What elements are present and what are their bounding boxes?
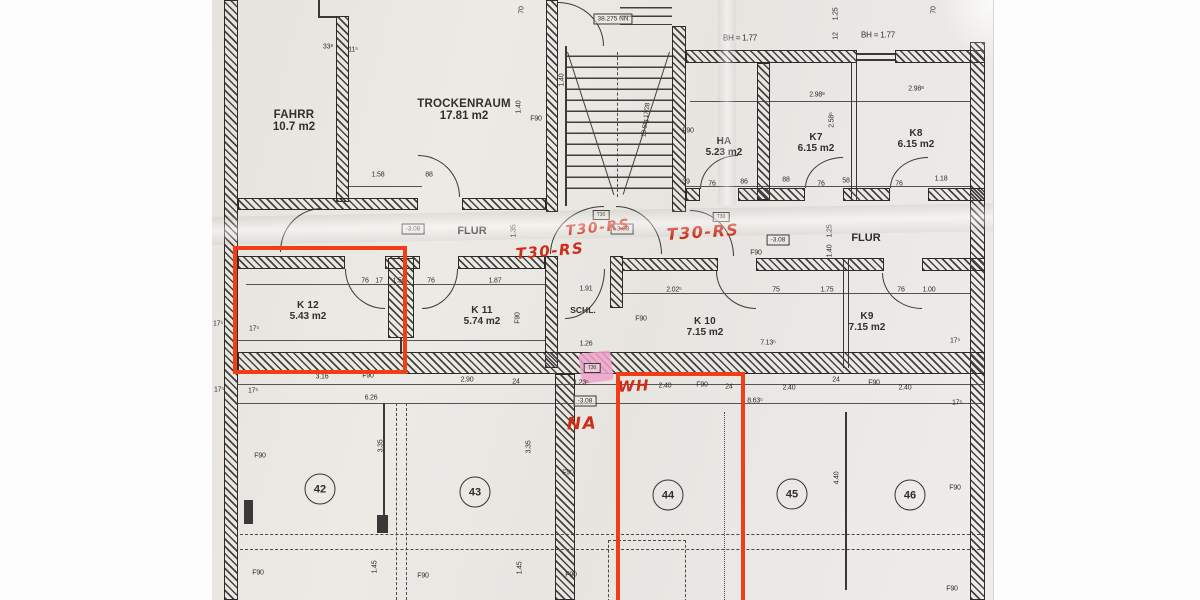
corridor-label: FLUR [851, 232, 880, 244]
room-name: FAHRR [273, 109, 315, 121]
dim-label: 2.98⁸ [908, 86, 924, 93]
room-label: K76.15 m2 [798, 132, 835, 154]
dim-label: 1.00 [923, 287, 936, 294]
dim-label: 17⁵ [952, 400, 962, 407]
dim-label: 1.25 [827, 225, 834, 238]
room-name: HA [706, 136, 743, 147]
dim-label: 1.40 [559, 74, 566, 87]
zone-number-circle: 46 [895, 480, 926, 511]
dim-label: 88 [425, 172, 432, 179]
room-label: K 107.15 m2 [687, 316, 724, 338]
dim-label: F90 [682, 128, 693, 135]
dim-label: 17⁵ [950, 338, 960, 345]
room-name: K7 [798, 132, 835, 143]
red-marker-rect-zone44 [616, 372, 745, 600]
room-area: 10.7 m2 [273, 121, 315, 133]
floorplan-scan: 33⁸11⁵70701.2512BH = 1.77BH = 1.771.402.… [0, 0, 1200, 600]
dim-label: 75 [772, 287, 779, 294]
dim-label: 1.23⁵ [573, 380, 589, 387]
dim-label: 3.35 [526, 441, 533, 454]
dim-label: F90 [868, 380, 879, 387]
dim-label: 1.40 [827, 245, 834, 258]
dim-label: 11⁵ [348, 47, 358, 54]
dim-label: 17⁵ [214, 387, 224, 394]
dim-label: 2.98⁸ [809, 92, 825, 99]
dim-label: 1.87 [489, 278, 502, 285]
level-box: 38.275 NN [593, 14, 632, 25]
dim-label: F90 [254, 453, 265, 460]
level-box: T30 [584, 363, 601, 373]
red-pen-annotation: T30-RS [666, 220, 740, 244]
room-area: 6.15 m2 [798, 143, 835, 154]
level-box: -3.08 [574, 396, 597, 407]
dim-label: F90 [565, 572, 576, 579]
dim-label: 8.63⁵ [747, 398, 763, 405]
red-pen-annotation: T30-RS [515, 239, 585, 263]
dim-label: 17⁵ [248, 388, 258, 395]
red-pen-annotation: NA [566, 413, 597, 434]
dim-label: 1.25 [833, 8, 840, 21]
dim-label: 76 [708, 181, 715, 188]
room-name: K8 [898, 128, 935, 139]
corridor-label: SCHL. [570, 305, 596, 315]
dim-label: 1.35 [511, 225, 518, 238]
dim-label: 2.58⁵ [829, 112, 836, 128]
room-label: TROCKENRAUM17.81 m2 [417, 98, 511, 122]
zone-number-circle: 45 [777, 479, 808, 510]
dim-label: 88 [782, 177, 789, 184]
dim-label: F90 [750, 250, 761, 257]
dim-label: 3.16 [316, 374, 329, 381]
dim-label: 1.18 [935, 176, 948, 183]
room-area: 5.74 m2 [464, 316, 501, 327]
dim-label: 86 [740, 179, 747, 186]
room-area: 7.15 m2 [849, 322, 886, 333]
zone-number-circle: 42 [305, 474, 336, 505]
dim-label: 1.40 [516, 101, 523, 114]
room-label: K97.15 m2 [849, 311, 886, 333]
dim-label: 76 [895, 181, 902, 188]
label-layer: 33⁸11⁵70701.2512BH = 1.77BH = 1.771.402.… [0, 0, 1200, 600]
dim-label: 1.91 [580, 286, 593, 293]
dim-label: 6.26 [365, 395, 378, 402]
dim-label: 17⁵ [213, 321, 223, 328]
room-name: K 10 [687, 316, 724, 327]
dim-label: 39 [682, 179, 689, 186]
dim-label: 2.02⁵ [666, 287, 682, 294]
dim-label: F90 [562, 470, 573, 477]
red-pen-annotation: T30-RS [565, 217, 631, 240]
dim-label: 3.35 [378, 440, 385, 453]
zone-number-circle: 43 [460, 477, 491, 508]
room-label: K86.15 m2 [898, 128, 935, 150]
room-name: K9 [849, 311, 886, 322]
room-label: FAHRR10.7 m2 [273, 109, 315, 133]
dim-label: BH = 1.77 [723, 34, 757, 43]
dim-label: 70 [519, 6, 526, 13]
corridor-label: FLUR [457, 225, 486, 237]
red-marker-rect-k12 [233, 246, 407, 374]
room-label: K 115.74 m2 [464, 305, 501, 327]
dim-label: 33⁸ [323, 44, 333, 51]
dim-label: F90 [946, 586, 957, 593]
dim-label: F90 [515, 312, 522, 323]
dim-label: 2.40 [783, 385, 796, 392]
dim-label: 24 [512, 379, 519, 386]
room-area: 5.23 m2 [706, 147, 743, 158]
level-box: -3.08 [767, 235, 790, 246]
dim-label: 1.45 [372, 561, 379, 574]
dim-label: 1.45 [517, 562, 524, 575]
room-name: K 11 [464, 305, 501, 316]
dim-label: BH = 1.77 [861, 31, 895, 40]
dim-label: F90 [417, 573, 428, 580]
dim-label: F90 [530, 116, 541, 123]
level-box: -3.08 [402, 224, 425, 235]
room-area: 6.15 m2 [898, 139, 935, 150]
dim-label: 7.13⁵ [760, 340, 776, 347]
dim-label: 1.75 [821, 287, 834, 294]
room-name: TROCKENRAUM [417, 98, 511, 110]
dim-label: 1.58 [372, 172, 385, 179]
dim-label: 12 [833, 32, 840, 39]
room-label: HA5.23 m2 [706, 136, 743, 158]
dim-label: 76 [817, 181, 824, 188]
dim-label: 2.40 [899, 385, 912, 392]
dim-label: 18 Stg 17/28 [640, 102, 651, 137]
room-area: 17.81 m2 [417, 110, 511, 122]
dim-label: 1.26 [580, 341, 593, 348]
dim-label: 58 [842, 178, 849, 185]
dim-label: 24 [832, 377, 839, 384]
dim-label: 70 [931, 6, 938, 13]
dim-label: F90 [949, 485, 960, 492]
dim-label: F90 [252, 570, 263, 577]
dim-label: 76 [897, 287, 904, 294]
dim-label: F90 [635, 316, 646, 323]
room-area: 7.15 m2 [687, 327, 724, 338]
dim-label: 76 [427, 278, 434, 285]
dim-label: 4.40 [834, 472, 841, 485]
dim-label: 2.90 [461, 377, 474, 384]
